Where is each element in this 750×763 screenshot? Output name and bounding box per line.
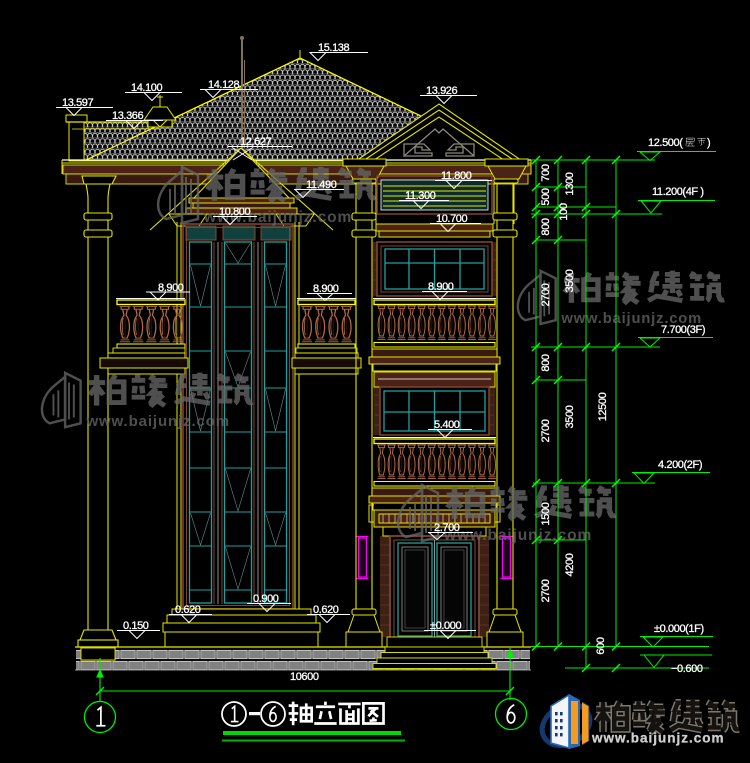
svg-text:500: 500 (540, 188, 552, 205)
svg-text:1300: 1300 (564, 172, 576, 195)
svg-text:100: 100 (558, 203, 570, 220)
svg-text:800: 800 (540, 218, 552, 235)
svg-text:±0.000(1F): ±0.000(1F) (654, 623, 704, 635)
svg-text:2700: 2700 (540, 283, 552, 306)
svg-text:www.baijunjz.com: www.baijunjz.com (591, 731, 725, 746)
svg-text:700: 700 (540, 164, 552, 181)
svg-text:3500: 3500 (564, 269, 576, 292)
svg-text:10600: 10600 (290, 671, 319, 683)
svg-text:4200: 4200 (564, 553, 576, 576)
svg-text:800: 800 (540, 354, 552, 371)
svg-text:600: 600 (595, 637, 607, 654)
svg-text:2700: 2700 (540, 579, 552, 602)
svg-text:7.700(3F): 7.700(3F) (661, 324, 705, 336)
svg-text:2700: 2700 (540, 419, 552, 442)
svg-text:11.200(4F ): 11.200(4F ) (652, 186, 704, 198)
svg-text:−0.600: −0.600 (671, 663, 703, 675)
svg-text:12500: 12500 (597, 392, 609, 421)
svg-text:4.200(2F): 4.200(2F) (658, 459, 702, 471)
svg-text:3500: 3500 (564, 405, 576, 428)
svg-text:1500: 1500 (540, 502, 552, 525)
svg-text:): ) (707, 137, 710, 149)
svg-text:12.500(: 12.500( (648, 137, 683, 149)
